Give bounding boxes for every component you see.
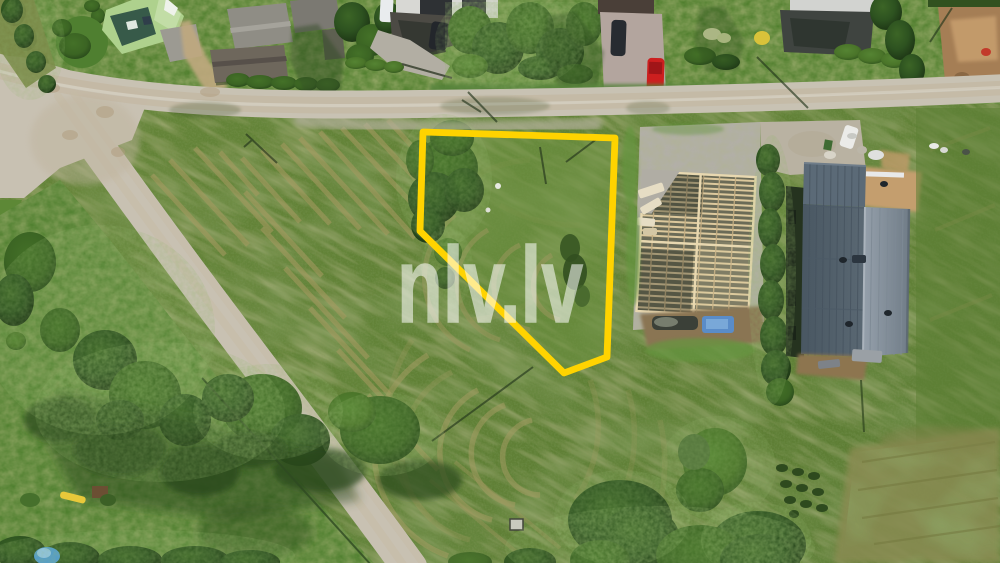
svg-text:nlv.lv: nlv.lv — [397, 224, 583, 345]
